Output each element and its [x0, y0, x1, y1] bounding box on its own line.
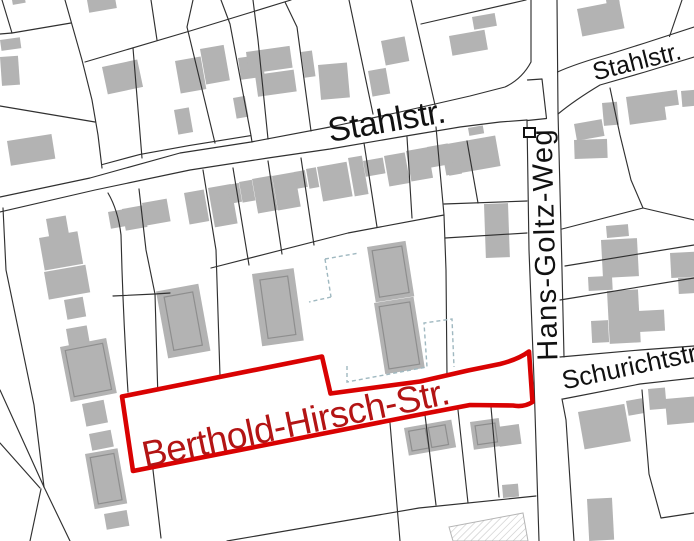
svg-text:Hans-Goltz-Weg: Hans-Goltz-Weg [526, 128, 564, 361]
